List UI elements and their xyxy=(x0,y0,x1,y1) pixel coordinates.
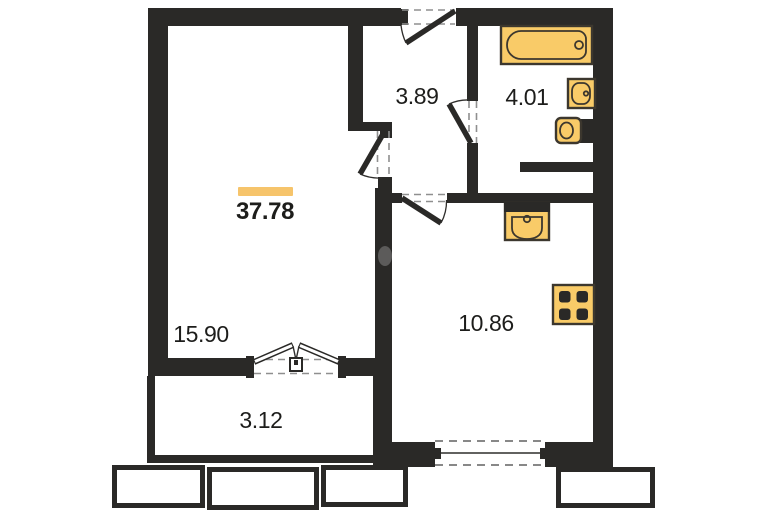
post-window-left xyxy=(433,448,441,459)
toilet-icon xyxy=(556,118,594,143)
post-living-door-top xyxy=(380,131,392,138)
wall-hall-bath-upper xyxy=(467,26,478,101)
bathroom-door xyxy=(449,100,477,143)
facade-rect-3 xyxy=(321,465,408,507)
balcony-french-door xyxy=(254,345,339,374)
wall-balcony-right xyxy=(373,358,392,467)
kitchen-window xyxy=(435,441,545,465)
wall-living-balcony-left xyxy=(148,358,252,376)
kitchen-door xyxy=(402,195,447,224)
wall-right xyxy=(593,8,613,467)
living-room-area-label: 15.90 xyxy=(173,323,229,346)
living-room-door xyxy=(360,131,389,178)
total-area-underline xyxy=(238,187,293,196)
bathtub-icon xyxy=(501,26,592,64)
bathroom-door-leaf xyxy=(449,104,471,143)
kitchen-area-label: 10.86 xyxy=(458,312,514,335)
wall-left xyxy=(148,8,168,376)
post-window-right xyxy=(540,448,548,459)
french-door-threshold xyxy=(290,358,302,371)
wall-living-hall-jog xyxy=(348,122,392,131)
kitchen-sink-icon xyxy=(504,202,550,240)
stove-icon xyxy=(553,285,594,324)
post-french-door-left xyxy=(246,356,254,378)
wall-balcony-thin-left xyxy=(147,376,155,462)
wall-living-kitchen xyxy=(375,188,392,358)
bathroom-area-label: 4.01 xyxy=(505,86,548,109)
post-entrance-left xyxy=(400,9,408,25)
balcony-area-label: 3.12 xyxy=(239,409,282,432)
kitchen-door-leaf xyxy=(402,198,441,223)
facade-rect-1 xyxy=(112,465,205,508)
wall-balcony-thin-bottom xyxy=(147,455,377,463)
wall-top-right xyxy=(456,8,613,26)
living-room-door-leaf xyxy=(360,134,383,174)
entrance-door xyxy=(401,10,455,43)
washbasin-icon xyxy=(568,79,595,108)
entrance-door-leaf xyxy=(406,11,455,43)
total-area-label: 37.78 xyxy=(236,200,294,224)
wall-kitchen-bottom-left xyxy=(390,442,435,467)
wall-living-hall-upper xyxy=(348,26,363,123)
hallway-area-label: 3.89 xyxy=(395,85,438,108)
post-french-door-right xyxy=(338,356,346,378)
facade-rect-2 xyxy=(207,467,319,510)
facade-rect-4 xyxy=(556,467,655,508)
floor-plan: 37.78 15.90 3.89 4.01 10.86 3.12 xyxy=(0,0,770,510)
wall-bath-bottom xyxy=(520,162,593,172)
wall-hall-kitchen-left xyxy=(375,193,402,203)
wall-kitchen-bottom-right xyxy=(545,442,613,467)
wall-top-left xyxy=(148,8,401,26)
wall-kitchen-top xyxy=(447,193,593,203)
